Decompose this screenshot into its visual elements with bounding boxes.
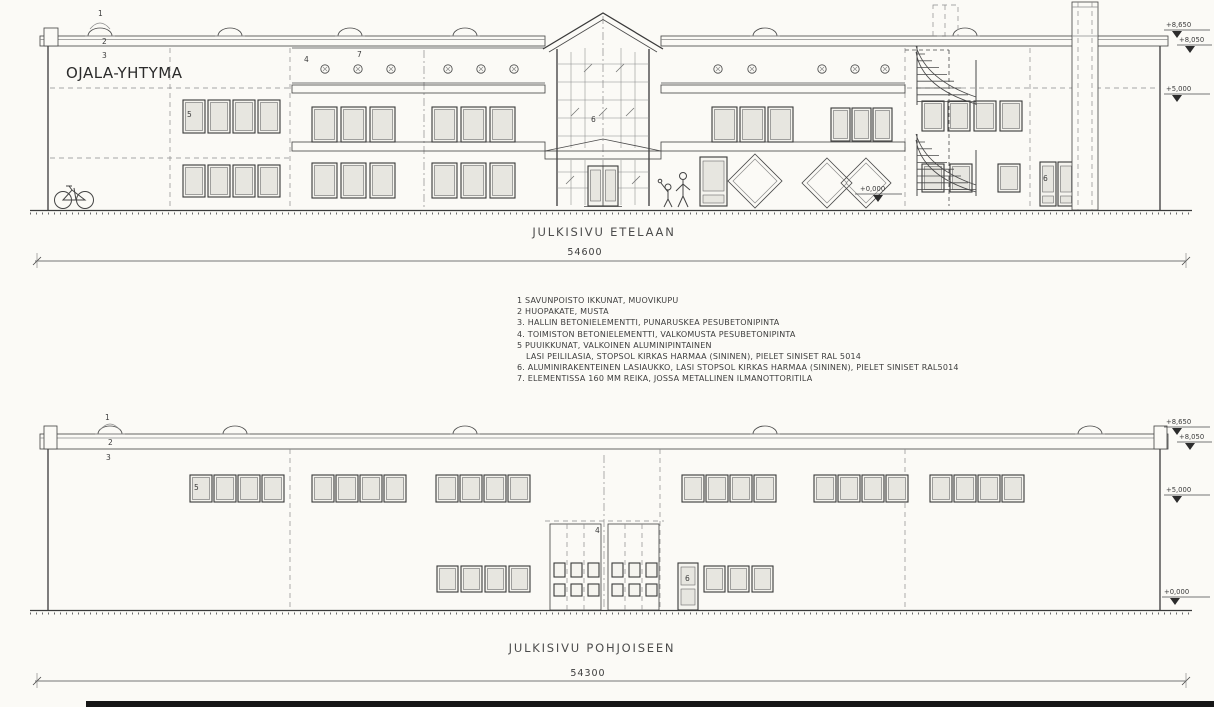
window bbox=[712, 107, 737, 142]
window bbox=[862, 475, 884, 502]
window-glass bbox=[373, 110, 393, 140]
window-glass bbox=[743, 110, 763, 140]
door-window bbox=[588, 584, 599, 596]
window bbox=[312, 475, 334, 502]
window-glass bbox=[236, 103, 253, 131]
window-glass bbox=[344, 110, 364, 140]
roof-vent-dome bbox=[95, 426, 125, 434]
callout-5: 5 bbox=[194, 483, 199, 492]
window-glass bbox=[186, 168, 203, 195]
window bbox=[768, 107, 793, 142]
roof-vent-dome bbox=[85, 28, 115, 36]
window-glass bbox=[933, 478, 950, 500]
level-label: +5,000 bbox=[1166, 85, 1191, 93]
legend-line: 7. ELEMENTISSA 160 MM REIKA, JOSSA METAL… bbox=[517, 373, 959, 384]
roof-vent-domes bbox=[95, 426, 1105, 434]
window bbox=[682, 475, 704, 502]
roof-vent-dome bbox=[750, 28, 780, 36]
dome-shell bbox=[753, 426, 777, 434]
door-window bbox=[571, 584, 582, 596]
diamond-ornaments bbox=[728, 154, 891, 208]
window-glass bbox=[488, 569, 504, 590]
callout-4: 4 bbox=[304, 55, 309, 64]
vent-hole bbox=[444, 65, 452, 73]
company-name: OJALA-YHTYMA bbox=[66, 64, 183, 82]
south-dimension: 54600 bbox=[567, 247, 602, 258]
vent-band bbox=[292, 48, 905, 93]
window bbox=[341, 107, 366, 142]
window-glass bbox=[315, 166, 335, 196]
vent-hole bbox=[354, 65, 362, 73]
legend-line: 2 HUOPAKATE, MUSTA bbox=[517, 306, 959, 317]
door-window bbox=[554, 563, 565, 577]
window-glass bbox=[1001, 167, 1018, 190]
window bbox=[336, 475, 358, 502]
north-windows bbox=[190, 475, 1024, 592]
level-label: +0,000 bbox=[860, 185, 885, 193]
window-glass bbox=[261, 103, 278, 131]
window bbox=[233, 165, 255, 197]
vent-hole bbox=[387, 65, 395, 73]
window-glass bbox=[464, 110, 484, 140]
personnel-door bbox=[678, 563, 698, 610]
south-elevation: +0,000 bbox=[30, 2, 1212, 268]
window bbox=[508, 475, 530, 502]
roof-vent-domes bbox=[85, 28, 980, 36]
window-glass bbox=[464, 166, 484, 196]
dimension-line-north: 54300 bbox=[33, 668, 1190, 688]
callout-1: 1 bbox=[98, 9, 103, 18]
window bbox=[740, 107, 765, 142]
entrance-door bbox=[584, 166, 622, 207]
window-glass bbox=[217, 478, 234, 500]
door-window bbox=[571, 563, 582, 577]
parapet-end-cap bbox=[44, 28, 58, 46]
door-window bbox=[646, 584, 657, 596]
roof-vent-dome bbox=[450, 28, 480, 36]
callout-4: 4 bbox=[595, 526, 600, 535]
window bbox=[831, 108, 850, 141]
window-glass bbox=[733, 478, 750, 500]
window bbox=[208, 165, 230, 197]
vent-hole bbox=[714, 65, 722, 73]
callout-5: 5 bbox=[187, 110, 192, 119]
window bbox=[432, 163, 457, 198]
dome-shell bbox=[453, 426, 477, 434]
window bbox=[954, 475, 976, 502]
legend: 1 SAVUNPOISTO IKKUNAT, MUOVIKUPU 2 HUOPA… bbox=[517, 295, 959, 385]
dome-shell bbox=[218, 28, 242, 36]
window bbox=[233, 100, 255, 133]
level-label: +8,050 bbox=[1179, 433, 1204, 441]
vent-hole bbox=[477, 65, 485, 73]
callout-3: 3 bbox=[106, 453, 111, 462]
window bbox=[262, 475, 284, 502]
window-glass bbox=[487, 478, 504, 500]
window-glass bbox=[387, 478, 404, 500]
window bbox=[838, 475, 860, 502]
callout-2: 2 bbox=[108, 438, 113, 447]
window-glass bbox=[440, 569, 456, 590]
window bbox=[752, 566, 773, 592]
window-glass bbox=[957, 478, 974, 500]
window-glass bbox=[981, 478, 998, 500]
legend-line: 4. TOIMISTON BETONIELEMENTTI, VALKOMUSTA… bbox=[517, 329, 959, 340]
hatch-band bbox=[292, 85, 545, 93]
window-glass bbox=[373, 166, 393, 196]
window bbox=[370, 107, 395, 142]
window-glass bbox=[1005, 478, 1022, 500]
window-glass bbox=[315, 478, 332, 500]
dome-shell bbox=[223, 426, 247, 434]
parapet-end-cap bbox=[1154, 426, 1167, 449]
window-glass bbox=[265, 478, 282, 500]
window bbox=[998, 164, 1020, 192]
window-glass bbox=[344, 166, 364, 196]
window bbox=[1002, 475, 1024, 502]
window bbox=[974, 101, 996, 131]
window bbox=[704, 566, 725, 592]
roof-vent-dome bbox=[335, 28, 365, 36]
door-window bbox=[612, 563, 623, 577]
window bbox=[360, 475, 382, 502]
level-marker-mid: +5,000 bbox=[1164, 486, 1210, 503]
door-window bbox=[588, 563, 599, 577]
window bbox=[258, 100, 280, 133]
window bbox=[437, 566, 458, 592]
chimney bbox=[1072, 2, 1098, 210]
callout-1: 1 bbox=[105, 413, 110, 422]
window bbox=[460, 475, 482, 502]
callout-7: 7 bbox=[357, 50, 362, 59]
dome-shell bbox=[88, 28, 112, 36]
level-label: +8,650 bbox=[1166, 21, 1191, 29]
window bbox=[484, 475, 506, 502]
window-glass bbox=[951, 104, 968, 129]
north-dimension: 54300 bbox=[570, 668, 605, 679]
window bbox=[490, 107, 515, 142]
dome-shell bbox=[953, 28, 977, 36]
entrance-tower bbox=[543, 13, 663, 207]
window bbox=[485, 566, 506, 592]
exit-doors bbox=[1040, 162, 1074, 206]
window bbox=[238, 475, 260, 502]
window-glass bbox=[211, 168, 228, 195]
dome-shell bbox=[338, 28, 362, 36]
level-marker-mid: +5,000 bbox=[1164, 85, 1210, 102]
roof-vent-dome bbox=[450, 426, 480, 434]
window bbox=[214, 475, 236, 502]
roof-vent-dome bbox=[950, 28, 980, 36]
window bbox=[886, 475, 908, 502]
window bbox=[852, 108, 871, 141]
legend-line: 5 PUUIKKUNAT, VALKOINEN ALUMINIPINTAINEN bbox=[517, 340, 959, 351]
legend-line: 3. HALLIN BETONIELEMENTTI, PUNARUSKEA PE… bbox=[517, 317, 959, 328]
callout-3: 3 bbox=[102, 51, 107, 60]
callout-6: 6 bbox=[591, 115, 596, 124]
roof-vent-dome bbox=[220, 426, 250, 434]
window bbox=[384, 475, 406, 502]
roof-hatch-stack bbox=[933, 5, 958, 36]
window-glass bbox=[715, 110, 735, 140]
door-window bbox=[629, 584, 640, 596]
window-glass bbox=[315, 110, 335, 140]
window bbox=[208, 100, 230, 133]
window bbox=[436, 475, 458, 502]
window-glass bbox=[755, 569, 771, 590]
fascia-band bbox=[40, 426, 1168, 449]
window bbox=[370, 163, 395, 198]
fascia-band bbox=[40, 28, 1168, 46]
callout-6: 6 bbox=[685, 574, 690, 583]
roof-vent-dome bbox=[1075, 426, 1105, 434]
window-glass bbox=[1003, 104, 1020, 129]
level-marker-ground: +0,000 bbox=[1162, 588, 1210, 605]
window-glass bbox=[512, 569, 528, 590]
callout-6: 6 bbox=[1043, 174, 1048, 183]
vent-hole bbox=[510, 65, 518, 73]
window-glass bbox=[511, 478, 528, 500]
window-glass bbox=[757, 478, 774, 500]
window-glass bbox=[889, 478, 906, 500]
vent-hole bbox=[321, 65, 329, 73]
legend-line: 6. ALUMINIRAKENTEINEN LASIAUKKO, LASI ST… bbox=[517, 362, 959, 373]
dome-shell bbox=[1078, 426, 1102, 434]
window-glass bbox=[463, 478, 480, 500]
window bbox=[312, 107, 337, 142]
side-door bbox=[700, 157, 727, 206]
window bbox=[930, 475, 952, 502]
window-glass bbox=[236, 168, 253, 195]
window bbox=[922, 164, 944, 192]
window-glass bbox=[261, 168, 278, 195]
door-window bbox=[554, 584, 565, 596]
scan-artifact bbox=[86, 701, 1214, 707]
window bbox=[461, 107, 486, 142]
window bbox=[509, 566, 530, 592]
dome-shell bbox=[753, 28, 777, 36]
bicycle bbox=[55, 186, 94, 209]
people-figures bbox=[658, 173, 690, 208]
window-glass bbox=[925, 104, 942, 129]
window bbox=[706, 475, 728, 502]
window-glass bbox=[707, 569, 723, 590]
window-glass bbox=[435, 166, 455, 196]
hatch-band bbox=[661, 142, 905, 151]
dome-shell bbox=[98, 426, 122, 434]
south-caption: JULKISIVU ETELAAN bbox=[531, 225, 675, 239]
legend-line: 1 SAVUNPOISTO IKKUNAT, MUOVIKUPU bbox=[517, 295, 959, 306]
legend-line: LASI PEILILASIA, STOPSOL KIRKAS HARMAA (… bbox=[526, 351, 959, 362]
window-glass bbox=[731, 569, 747, 590]
level-marker-fascia: +8,050 bbox=[1177, 36, 1212, 53]
level-label: +0,000 bbox=[1164, 588, 1189, 596]
north-caption: JULKISIVU POHJOISEEN bbox=[508, 641, 676, 655]
window bbox=[183, 165, 205, 197]
vent-hole bbox=[818, 65, 826, 73]
window-glass bbox=[865, 478, 882, 500]
window bbox=[754, 475, 776, 502]
callout-2: 2 bbox=[102, 37, 107, 46]
dimension-line-south: 54600 bbox=[33, 247, 1190, 268]
window-glass bbox=[493, 110, 513, 140]
vent-hole bbox=[881, 65, 889, 73]
hall-doors bbox=[545, 521, 664, 610]
window bbox=[1000, 101, 1022, 131]
north-elevation: 1 2 3 5 4 6 +8,650 +8,050 +5,000 +0,000 … bbox=[30, 413, 1212, 688]
window bbox=[258, 165, 280, 197]
hatch-band bbox=[292, 142, 545, 151]
window bbox=[978, 475, 1000, 502]
door-window bbox=[646, 563, 657, 577]
dome-shell bbox=[453, 28, 477, 36]
window bbox=[461, 163, 486, 198]
window bbox=[873, 108, 892, 141]
parapet-end-cap bbox=[44, 426, 57, 449]
window bbox=[461, 566, 482, 592]
window-glass bbox=[855, 111, 869, 139]
roof-vent-dome bbox=[750, 426, 780, 434]
vent-hole bbox=[748, 65, 756, 73]
window-glass bbox=[464, 569, 480, 590]
window-glass bbox=[817, 478, 834, 500]
window bbox=[490, 163, 515, 198]
callout-leader bbox=[100, 424, 120, 430]
window-glass bbox=[977, 104, 994, 129]
window-glass bbox=[211, 103, 228, 131]
window-glass bbox=[241, 478, 258, 500]
window bbox=[922, 101, 944, 131]
window-glass bbox=[876, 111, 890, 139]
window-glass bbox=[439, 478, 456, 500]
window-glass bbox=[493, 166, 513, 196]
window bbox=[312, 163, 337, 198]
level-label: +8,650 bbox=[1166, 418, 1191, 426]
level-label: +5,000 bbox=[1166, 486, 1191, 494]
window-glass bbox=[834, 111, 848, 139]
window-glass bbox=[841, 478, 858, 500]
window-glass bbox=[339, 478, 356, 500]
window bbox=[728, 566, 749, 592]
vent-holes bbox=[321, 65, 889, 73]
window-glass bbox=[435, 110, 455, 140]
level-label: +8,050 bbox=[1179, 36, 1204, 44]
roof-vent-dome bbox=[215, 28, 245, 36]
window bbox=[814, 475, 836, 502]
window bbox=[432, 107, 457, 142]
window-glass bbox=[953, 167, 970, 190]
window-glass bbox=[771, 110, 791, 140]
window bbox=[948, 101, 970, 131]
vent-hole bbox=[851, 65, 859, 73]
window bbox=[950, 164, 972, 192]
hatch-band bbox=[661, 85, 905, 93]
window-glass bbox=[709, 478, 726, 500]
window bbox=[341, 163, 366, 198]
door-window bbox=[629, 563, 640, 577]
door-window bbox=[612, 584, 623, 596]
drawing-sheet: +0,000 bbox=[0, 0, 1214, 707]
window-glass bbox=[363, 478, 380, 500]
window bbox=[730, 475, 752, 502]
window-glass bbox=[685, 478, 702, 500]
level-marker-fascia: +8,050 bbox=[1177, 433, 1212, 450]
